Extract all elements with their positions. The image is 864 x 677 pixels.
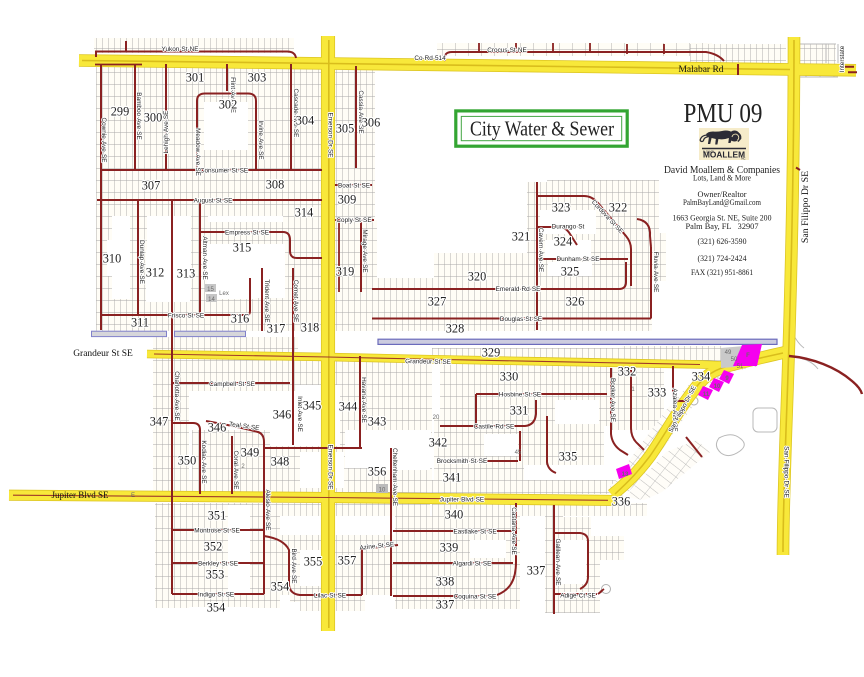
svg-text:Emerson·Dr·SE: Emerson·Dr·SE bbox=[327, 112, 334, 157]
svg-text:347: 347 bbox=[150, 415, 168, 429]
svg-text:346: 346 bbox=[208, 421, 226, 435]
svg-text:Comet·Ave·SE: Comet·Ave·SE bbox=[292, 280, 299, 323]
svg-text:302: 302 bbox=[219, 98, 237, 112]
svg-text:Campbell·St·SE: Campbell·St·SE bbox=[209, 381, 255, 388]
svg-text:338: 338 bbox=[436, 575, 454, 589]
svg-text:Empress·St·SE: Empress·St·SE bbox=[225, 230, 269, 237]
svg-text:Durango·St: Durango·St bbox=[552, 224, 585, 231]
svg-text:Charlotta·Ave·SE: Charlotta·Ave·SE bbox=[173, 371, 180, 421]
svg-text:330: 330 bbox=[500, 370, 518, 384]
svg-text:354: 354 bbox=[207, 601, 225, 615]
svg-text:357: 357 bbox=[338, 554, 356, 568]
svg-text:312: 312 bbox=[146, 266, 164, 280]
svg-text:Yukon·St·NE: Yukon·St·NE bbox=[162, 46, 199, 53]
svg-text:311: 311 bbox=[131, 316, 149, 330]
svg-text:322: 322 bbox=[609, 201, 627, 215]
svg-text:324: 324 bbox=[554, 235, 572, 249]
svg-text:328: 328 bbox=[446, 322, 464, 336]
svg-text:Galilean·Ave·SE: Galilean·Ave·SE bbox=[554, 538, 561, 585]
svg-text:14: 14 bbox=[208, 297, 215, 303]
svg-text:331: 331 bbox=[510, 404, 528, 418]
svg-text:Lehigh·Ave·SE: Lehigh·Ave·SE bbox=[163, 111, 170, 154]
svg-text:317: 317 bbox=[267, 322, 285, 336]
svg-text:MOALLEM: MOALLEM bbox=[703, 151, 745, 160]
svg-text:Douglas·St·SE: Douglas·St·SE bbox=[500, 316, 542, 323]
svg-text:Irvine·Ave·SE: Irvine·Ave·SE bbox=[257, 120, 264, 159]
svg-text:Altman·Ave·SE: Altman·Ave·SE bbox=[201, 236, 208, 280]
svg-text:PalmBayLand@Gmail.com: PalmBayLand@Gmail.com bbox=[683, 197, 761, 207]
svg-text:10: 10 bbox=[714, 384, 721, 390]
svg-text:327: 327 bbox=[428, 295, 446, 309]
svg-text:Adige·Ct·SE: Adige·Ct·SE bbox=[560, 593, 596, 600]
svg-text:Lots, Land & More: Lots, Land & More bbox=[693, 173, 751, 183]
svg-text:320: 320 bbox=[468, 270, 486, 284]
svg-text:342: 342 bbox=[429, 436, 447, 450]
svg-text:336: 336 bbox=[612, 495, 630, 509]
svg-text:314: 314 bbox=[295, 206, 313, 220]
svg-text:Palm Bay, FL 32907: Palm Bay, FL 32907 bbox=[686, 221, 760, 231]
svg-text:344: 344 bbox=[339, 400, 357, 414]
svg-text:11: 11 bbox=[703, 392, 710, 398]
svg-text:350: 350 bbox=[178, 454, 196, 468]
svg-text:Jupiter Blvd SE: Jupiter Blvd SE bbox=[51, 490, 109, 500]
svg-text:351: 351 bbox=[208, 509, 226, 523]
svg-text:Co·Rd·514: Co·Rd·514 bbox=[414, 55, 446, 62]
svg-text:Dunham·St·SE: Dunham·St·SE bbox=[557, 256, 600, 263]
svg-text:321: 321 bbox=[512, 230, 530, 244]
svg-text:49: 49 bbox=[725, 350, 732, 356]
svg-text:Emerald·Rd·SE: Emerald·Rd·SE bbox=[496, 286, 541, 293]
svg-text:333: 333 bbox=[648, 386, 666, 400]
svg-text:Coral·Ave·SE: Coral·Ave·SE bbox=[232, 451, 239, 490]
svg-text:309: 309 bbox=[338, 193, 356, 207]
svg-text:Hosbine·St·SE: Hosbine·St·SE bbox=[499, 392, 541, 399]
svg-text:Jupiter·Blvd·SE: Jupiter·Blvd·SE bbox=[440, 497, 484, 504]
svg-text:(321) 724-2424: (321) 724-2424 bbox=[698, 253, 748, 263]
svg-text:Castana·Ave·SE: Castana·Ave·SE bbox=[510, 507, 517, 554]
svg-text:349: 349 bbox=[241, 446, 259, 460]
svg-text:323: 323 bbox=[552, 201, 570, 215]
svg-text:Lex: Lex bbox=[219, 291, 229, 297]
svg-text:308: 308 bbox=[266, 178, 284, 192]
svg-text:332: 332 bbox=[618, 365, 636, 379]
svg-text:Bamboo·Ave·SE: Bamboo·Ave·SE bbox=[135, 92, 142, 139]
svg-text:353: 353 bbox=[206, 568, 224, 582]
svg-text:307: 307 bbox=[142, 179, 160, 193]
svg-text:334: 334 bbox=[692, 370, 710, 384]
svg-text:316: 316 bbox=[231, 312, 249, 326]
svg-text:Mirage·Ave·SE: Mirage·Ave·SE bbox=[361, 229, 368, 272]
svg-text:Grandeur St SE: Grandeur St SE bbox=[73, 349, 133, 359]
svg-text:340: 340 bbox=[445, 508, 463, 522]
svg-text:356: 356 bbox=[368, 465, 386, 479]
svg-text:Cownie·Ave·SE: Cownie·Ave·SE bbox=[100, 118, 107, 163]
svg-text:20: 20 bbox=[433, 415, 440, 421]
svg-text:Grandeur·St·SE: Grandeur·St·SE bbox=[405, 358, 451, 366]
svg-text:319: 319 bbox=[336, 265, 354, 279]
svg-text:315: 315 bbox=[233, 241, 251, 255]
svg-text:10: 10 bbox=[379, 488, 386, 494]
svg-text:Fluvia·Ave·SE: Fluvia·Ave·SE bbox=[652, 252, 659, 293]
svg-text:Cavern·Ave·SE: Cavern·Ave·SE bbox=[537, 228, 544, 272]
svg-text:Castile·Rd·SE: Castile·Rd·SE bbox=[474, 424, 515, 431]
svg-text:346: 346 bbox=[273, 408, 291, 422]
svg-text:306: 306 bbox=[362, 116, 380, 130]
svg-text:318: 318 bbox=[301, 321, 319, 335]
svg-text:343: 343 bbox=[368, 415, 386, 429]
svg-text:Brocksmith·St·SE: Brocksmith·St·SE bbox=[437, 458, 487, 465]
svg-text:Trident·Ave·SE: Trident·Ave·SE bbox=[263, 279, 270, 322]
svg-text:E: E bbox=[131, 493, 135, 499]
svg-text:301: 301 bbox=[186, 71, 204, 85]
svg-text:310: 310 bbox=[103, 252, 121, 266]
svg-text:329: 329 bbox=[482, 346, 500, 360]
svg-text:Interstate: Interstate bbox=[839, 45, 846, 72]
svg-text:337: 337 bbox=[527, 564, 545, 578]
svg-text:Eastlake·St·SE: Eastlake·St·SE bbox=[453, 529, 496, 536]
svg-text:PMU 09: PMU 09 bbox=[684, 98, 763, 128]
svg-text:Lilac·St·SE: Lilac·St·SE bbox=[314, 593, 346, 600]
svg-text:Booker·Ave·SE: Booker·Ave·SE bbox=[609, 378, 616, 422]
svg-text:(321) 626-3590: (321) 626-3590 bbox=[698, 236, 748, 246]
svg-text:Meadow·Ave·SE: Meadow·Ave·SE bbox=[194, 128, 201, 176]
svg-text:Indigo·St·SE: Indigo·St·SE bbox=[198, 592, 234, 599]
svg-text:San Filippo Dr SE: San Filippo Dr SE bbox=[800, 171, 811, 243]
svg-text:337: 337 bbox=[436, 598, 454, 612]
svg-text:50: 50 bbox=[731, 357, 738, 363]
svg-text:Dunlap·Ave·SE: Dunlap·Ave·SE bbox=[138, 240, 145, 284]
svg-text:304: 304 bbox=[296, 114, 314, 128]
svg-text:300: 300 bbox=[144, 111, 162, 125]
svg-text:FAX (321) 951-8861: FAX (321) 951-8861 bbox=[691, 267, 753, 277]
svg-text:Alesio·Ave·SE: Alesio·Ave·SE bbox=[264, 489, 271, 530]
svg-text:305: 305 bbox=[336, 122, 354, 136]
svg-text:Berkley·St·SE: Berkley·St·SE bbox=[198, 561, 238, 568]
svg-text:326: 326 bbox=[566, 295, 584, 309]
svg-text:45: 45 bbox=[515, 450, 522, 456]
svg-text:Kodiac·Ave·SE: Kodiac·Ave·SE bbox=[200, 440, 207, 483]
svg-text:Montrose·St·SE: Montrose·St·SE bbox=[194, 528, 239, 535]
svg-text:345: 345 bbox=[303, 399, 321, 413]
svg-text:348: 348 bbox=[271, 455, 289, 469]
svg-text:Emerson·Dr·SE: Emerson·Dr·SE bbox=[327, 444, 334, 489]
svg-text:355: 355 bbox=[304, 555, 322, 569]
svg-text:341: 341 bbox=[443, 471, 461, 485]
svg-text:51: 51 bbox=[737, 364, 744, 370]
svg-text:354: 354 bbox=[271, 580, 289, 594]
svg-text:299: 299 bbox=[111, 105, 129, 119]
svg-text:13: 13 bbox=[622, 472, 629, 478]
svg-text:Bird·Ave·SE: Bird·Ave·SE bbox=[290, 548, 297, 583]
svg-text:City Water & Sewer: City Water & Sewer bbox=[470, 117, 614, 141]
svg-text:Crocus·St·NE: Crocus·St·NE bbox=[487, 47, 526, 54]
svg-text:Coquina·St·SE: Coquina·St·SE bbox=[454, 594, 497, 601]
svg-text:313: 313 bbox=[177, 267, 195, 281]
svg-text:Frisco·St·SE: Frisco·St·SE bbox=[168, 313, 204, 320]
svg-text:Boat·St·SE: Boat·St·SE bbox=[338, 183, 370, 190]
svg-text:339: 339 bbox=[440, 541, 458, 555]
svg-text:325: 325 bbox=[561, 265, 579, 279]
svg-text:Malabar Rd: Malabar Rd bbox=[678, 65, 723, 75]
svg-text:352: 352 bbox=[204, 540, 222, 554]
svg-text:Coply·St·SE: Coply·St·SE bbox=[336, 217, 371, 224]
svg-text:Algardi·St·SE: Algardi·St·SE bbox=[453, 561, 492, 568]
svg-text:15: 15 bbox=[207, 287, 214, 293]
svg-text:303: 303 bbox=[248, 71, 266, 85]
svg-text:Consumer·St·SE: Consumer·St·SE bbox=[200, 168, 248, 175]
svg-text:Cheltenham·Ave·SE: Cheltenham·Ave·SE bbox=[391, 448, 398, 506]
svg-text:Havana·Ave·SE: Havana·Ave·SE bbox=[360, 377, 367, 423]
svg-text:San·Filippo·Dr·SE: San·Filippo·Dr·SE bbox=[783, 446, 790, 498]
svg-text:F: F bbox=[746, 353, 750, 359]
svg-text:August·St·SE: August·St·SE bbox=[194, 198, 233, 205]
svg-text:335: 335 bbox=[559, 450, 577, 464]
